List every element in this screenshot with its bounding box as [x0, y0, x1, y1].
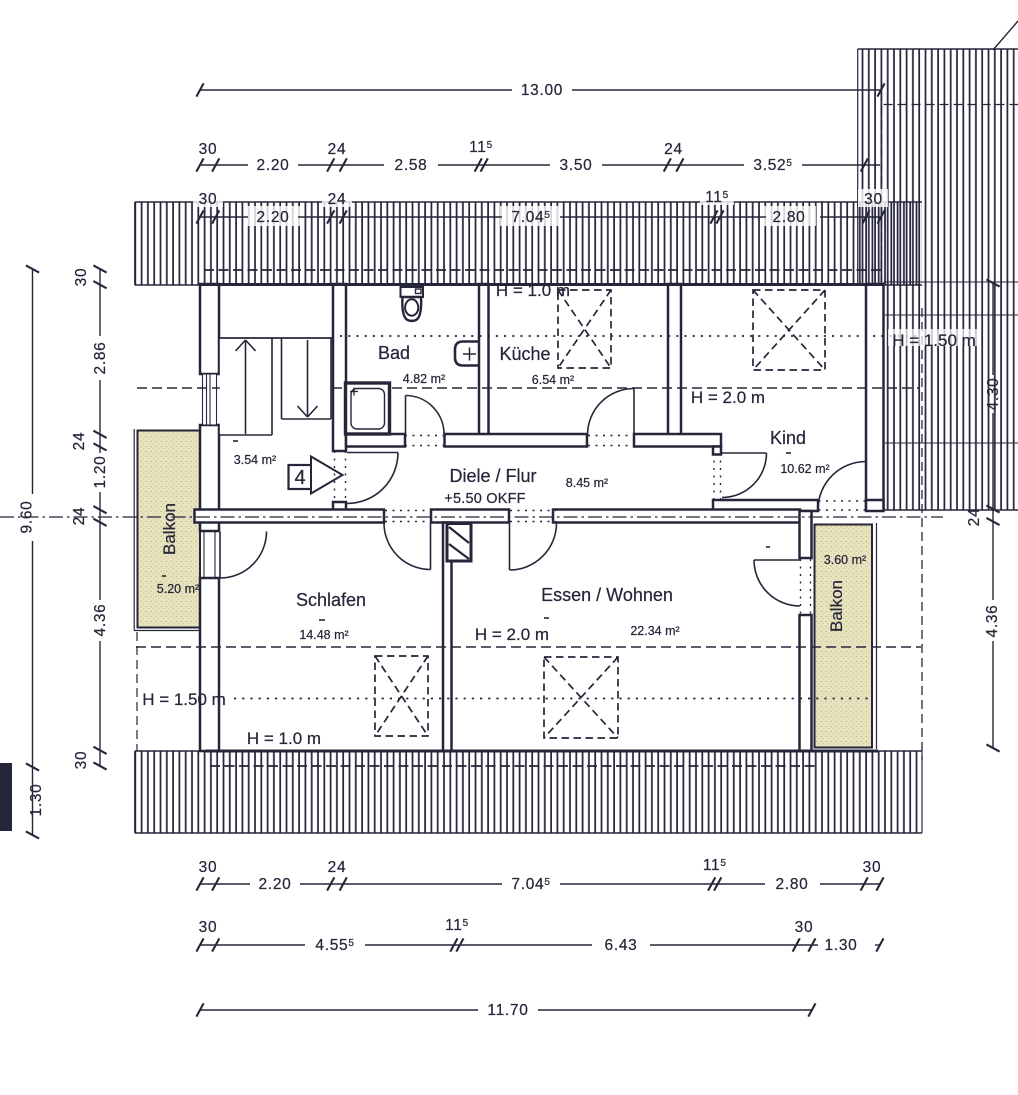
svg-text:Schlafen: Schlafen	[296, 590, 366, 610]
svg-text:2.20: 2.20	[257, 157, 290, 174]
svg-text:30: 30	[73, 268, 90, 287]
svg-text:24: 24	[328, 191, 347, 208]
svg-text:2.20: 2.20	[259, 876, 292, 893]
svg-text:2.20: 2.20	[257, 209, 290, 226]
svg-text:30: 30	[73, 751, 90, 770]
svg-text:2.80: 2.80	[773, 209, 806, 226]
svg-text:Diele / Flur: Diele / Flur	[449, 466, 536, 486]
svg-text:4.36: 4.36	[92, 604, 109, 637]
svg-text:115: 115	[445, 917, 469, 934]
svg-text:4: 4	[294, 467, 305, 489]
svg-text:4.36: 4.36	[984, 605, 1001, 638]
svg-text:H = 1.0 m: H = 1.0 m	[496, 281, 570, 300]
svg-text:Essen / Wohnen: Essen / Wohnen	[541, 585, 673, 605]
svg-text:30: 30	[199, 859, 218, 876]
svg-text:2.86: 2.86	[92, 342, 109, 375]
svg-text:13.00: 13.00	[521, 82, 563, 99]
svg-text:115: 115	[469, 139, 493, 156]
svg-text:3.525: 3.525	[753, 157, 792, 174]
svg-text:H = 1.50 m: H = 1.50 m	[892, 331, 976, 350]
svg-text:9.60: 9.60	[19, 501, 36, 534]
svg-text:30: 30	[199, 141, 218, 158]
svg-text:30: 30	[199, 191, 218, 208]
svg-text:24: 24	[664, 141, 683, 158]
svg-text:Balkon: Balkon	[160, 503, 179, 555]
svg-text:+5.50 OKFF: +5.50 OKFF	[444, 491, 525, 507]
svg-text:4.82 m²: 4.82 m²	[403, 372, 445, 386]
svg-text:24: 24	[71, 507, 88, 526]
svg-text:1.30: 1.30	[825, 937, 858, 954]
svg-text:Balkon: Balkon	[827, 580, 846, 632]
svg-text:H = 2.0 m: H = 2.0 m	[475, 625, 549, 644]
svg-text:24: 24	[71, 432, 88, 451]
svg-text:10.62 m²: 10.62 m²	[780, 462, 829, 476]
svg-text:2.58: 2.58	[395, 157, 428, 174]
svg-text:6.43: 6.43	[605, 937, 638, 954]
svg-text:30: 30	[863, 859, 882, 876]
svg-text:24: 24	[328, 141, 347, 158]
svg-text:H = 2.0 m: H = 2.0 m	[691, 388, 765, 407]
svg-text:7.045: 7.045	[511, 876, 550, 893]
svg-text:6.54 m²: 6.54 m²	[532, 373, 574, 387]
svg-text:3.50: 3.50	[560, 157, 593, 174]
svg-text:30: 30	[199, 919, 218, 936]
svg-text:14.48 m²: 14.48 m²	[299, 628, 348, 642]
svg-text:11.70: 11.70	[487, 1002, 528, 1019]
svg-text:3.60 m²: 3.60 m²	[824, 553, 866, 567]
svg-text:115: 115	[703, 857, 727, 874]
svg-text:Küche: Küche	[499, 344, 550, 364]
svg-text:Bad: Bad	[378, 343, 410, 363]
svg-text:4.555: 4.555	[315, 937, 354, 954]
svg-text:30: 30	[795, 919, 814, 936]
svg-text:1.30: 1.30	[28, 784, 45, 817]
svg-text:24: 24	[328, 859, 347, 876]
svg-text:4.30: 4.30	[985, 378, 1002, 411]
svg-text:1.20: 1.20	[92, 456, 109, 489]
svg-text:8.45 m²: 8.45 m²	[566, 476, 608, 490]
svg-text:30: 30	[864, 191, 883, 208]
svg-text:H = 1.50 m: H = 1.50 m	[142, 690, 226, 709]
svg-text:Kind: Kind	[770, 428, 806, 448]
svg-text:24: 24	[966, 508, 983, 527]
svg-text:5.20 m²: 5.20 m²	[157, 582, 199, 596]
svg-text:22.34 m²: 22.34 m²	[630, 624, 679, 638]
svg-text:2.80: 2.80	[776, 876, 809, 893]
svg-text:H = 1.0 m: H = 1.0 m	[247, 729, 321, 748]
svg-text:3.54 m²: 3.54 m²	[234, 453, 276, 467]
